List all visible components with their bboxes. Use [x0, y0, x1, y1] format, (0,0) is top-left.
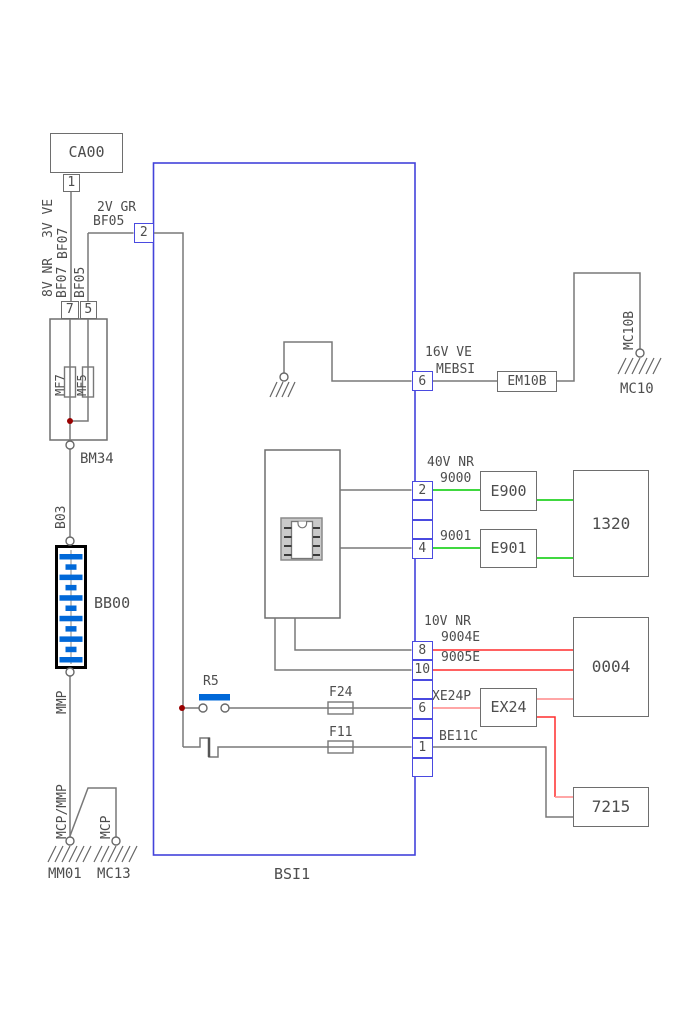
ground-symbols — [48, 358, 661, 862]
ground-mc10-label: MC10 — [620, 382, 654, 396]
connector-em10b: EM10B — [497, 371, 557, 392]
connector-ex24: EX24 — [480, 688, 537, 727]
bsi-pin-1: 1 — [412, 738, 434, 758]
battery-symbol — [57, 547, 86, 668]
wire-label-b03: B03 — [55, 506, 68, 529]
wire-label-bf07-lower: BF07 — [56, 267, 69, 298]
wire-be11c — [433, 747, 573, 817]
component-0004: 0004 — [573, 617, 649, 717]
wire-bsi-pin2-internal — [154, 233, 183, 747]
wire-module-pin8 — [295, 618, 412, 650]
component-ca00-label: CA00 — [68, 145, 104, 160]
fuse-mf7-label: MF7 — [54, 374, 66, 396]
fusebox-name: BM34 — [80, 452, 114, 466]
battery-name: BB00 — [94, 596, 130, 611]
relay-r5-label: R5 — [203, 675, 219, 688]
bsi-name: BSI1 — [274, 867, 310, 882]
bsi-pin-6-xe24: 6 — [412, 699, 434, 719]
bsi-pin-blank-3 — [412, 680, 434, 700]
wiring-diagram: CA00 EM10B E900 E901 1320 0004 EX24 7215… — [0, 0, 700, 1020]
wire-label-bf05: BF05 — [93, 215, 124, 228]
fuse-mf5-label: MF5 — [76, 374, 88, 396]
wire-label-9001: 9001 — [440, 530, 471, 543]
bsi-pin-6-mebsi: 6 — [412, 371, 434, 391]
connector-ex24-label: EX24 — [490, 700, 526, 715]
component-0004-label: 0004 — [592, 659, 631, 675]
ground-mm01-symbol — [48, 846, 91, 862]
junction-dot-r5 — [179, 705, 185, 711]
wire-bf05 — [88, 233, 134, 301]
wire-gauge-40v: 40V NR — [427, 456, 474, 469]
wire-f11 — [183, 738, 412, 757]
component-1320-label: 1320 — [592, 516, 631, 532]
ground-mc13-label: MC13 — [97, 867, 131, 881]
wire-mf5 — [71, 319, 88, 421]
ground-internal-symbol — [270, 382, 295, 397]
wire-gauge-16v: 16V VE — [425, 346, 472, 359]
ground-mc10-symbol — [618, 358, 661, 374]
connector-e901-label: E901 — [490, 541, 526, 556]
wire-label-bf05-lower: BF05 — [74, 267, 87, 298]
bsi-pin-8: 8 — [412, 641, 434, 661]
wire-label-mmp: MMP — [56, 691, 69, 714]
fusebox-pin-5: 5 — [80, 301, 98, 319]
component-1320: 1320 — [573, 470, 649, 577]
bsi-pin-2-left: 2 — [134, 223, 155, 243]
connector-e901: E901 — [480, 529, 537, 568]
bsi-pin-blank-4 — [412, 719, 434, 739]
bsi-unit-outline — [154, 163, 416, 855]
wire-label-mcp: MCP — [100, 816, 113, 839]
wire-label-be11c: BE11C — [439, 730, 478, 743]
junction-dot-bm34 — [67, 418, 73, 424]
wire-label-9005e: 9005E — [441, 651, 480, 664]
relay-coil-bar — [199, 694, 230, 701]
connector-em10b-label: EM10B — [507, 375, 546, 388]
wire-label-mc10b: MC10B — [623, 311, 636, 350]
connector-e900: E900 — [480, 471, 537, 511]
wire-label-mcpmmp: MCP/MMP — [56, 784, 69, 839]
ground-mm01-label: MM01 — [48, 867, 82, 881]
bsi-pin-blank-1 — [412, 500, 434, 520]
relay-r5-symbol — [199, 694, 230, 712]
wire-label-bf07-upper: BF07 — [57, 228, 70, 259]
fusebox-pin-7: 7 — [61, 301, 79, 319]
ca00-pin-1: 1 — [63, 174, 81, 192]
wire-gauge-2vgr: 2V GR — [97, 201, 136, 214]
wire-gauge-3vve: 3V VE — [42, 199, 55, 238]
component-7215: 7215 — [573, 787, 649, 827]
wire-label-9000: 9000 — [440, 472, 471, 485]
fuse-f11-label: F11 — [329, 726, 352, 739]
wire-internal-ground — [284, 342, 412, 381]
bsi-pin-blank-2 — [412, 520, 434, 540]
bsi-pin-blank-5 — [412, 758, 434, 778]
chip-icon — [281, 518, 322, 560]
bsi-pin-2-right: 2 — [412, 481, 434, 501]
bsi-pin-10: 10 — [412, 660, 434, 680]
wire-label-9004e: 9004E — [441, 631, 480, 644]
fuse-f24-label: F24 — [329, 686, 352, 699]
wire-gauge-8vnr: 8V NR — [42, 258, 55, 297]
connector-e900-label: E900 — [490, 484, 526, 499]
ground-mc13-symbol — [94, 846, 137, 862]
bsi-pin-4: 4 — [412, 539, 434, 559]
component-7215-label: 7215 — [592, 799, 631, 815]
wire-label-xe24p: XE24P — [432, 690, 471, 703]
component-ca00: CA00 — [50, 133, 123, 173]
wire-label-mebsi: MEBSI — [436, 363, 475, 376]
wire-gauge-10v: 10V NR — [424, 615, 471, 628]
